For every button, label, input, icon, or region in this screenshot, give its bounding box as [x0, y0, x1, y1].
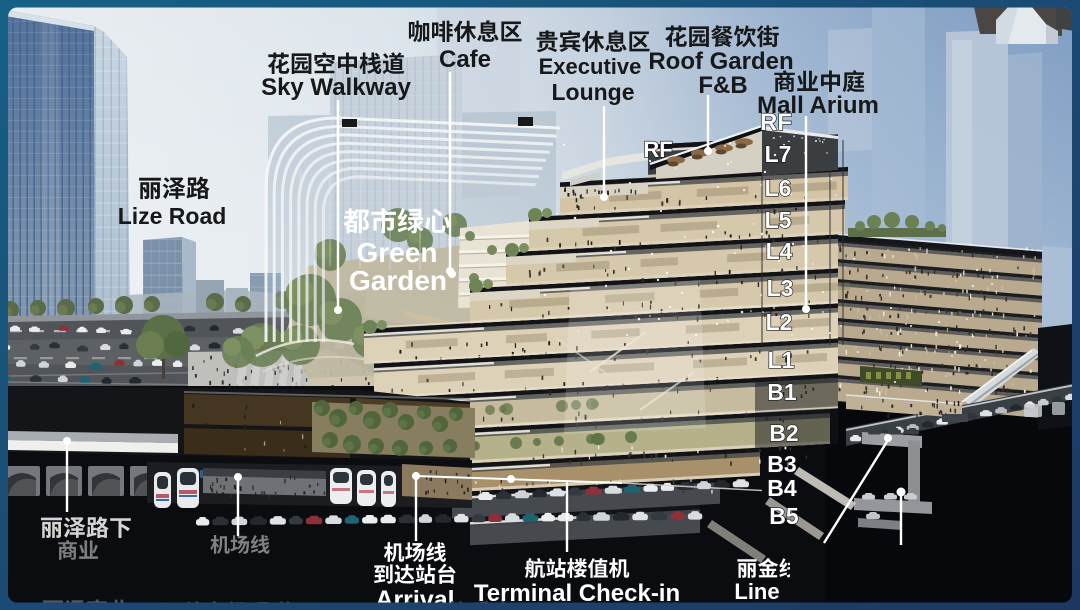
- svg-text:B3: B3: [767, 451, 796, 477]
- svg-text:F&B: F&B: [698, 72, 747, 99]
- svg-text:Green: Green: [357, 237, 438, 268]
- svg-text:L7: L7: [765, 141, 792, 167]
- svg-text:Sky Walkway: Sky Walkway: [261, 74, 412, 101]
- svg-text:Lounge: Lounge: [551, 79, 634, 105]
- svg-text:Garden: Garden: [349, 265, 447, 296]
- svg-text:L1: L1: [768, 347, 795, 373]
- svg-text:L4: L4: [766, 238, 793, 264]
- svg-text:Roof Garden: Roof Garden: [648, 48, 793, 75]
- svg-text:B5: B5: [769, 503, 799, 529]
- svg-text:B2: B2: [769, 420, 798, 446]
- svg-text:RF: RF: [643, 137, 672, 162]
- svg-text:B4: B4: [767, 475, 797, 501]
- svg-text:Cafe: Cafe: [439, 46, 491, 73]
- svg-text:Mall Arium: Mall Arium: [757, 92, 879, 119]
- svg-text:Lize Road: Lize Road: [118, 203, 227, 229]
- svg-text:L5: L5: [765, 207, 792, 233]
- svg-text:L3: L3: [767, 275, 794, 301]
- svg-text:Executive: Executive: [539, 54, 642, 79]
- svg-text:Line: Line: [734, 579, 779, 604]
- svg-text:L2: L2: [766, 309, 793, 335]
- svg-text:L6: L6: [765, 175, 792, 201]
- svg-text:B1: B1: [767, 379, 797, 405]
